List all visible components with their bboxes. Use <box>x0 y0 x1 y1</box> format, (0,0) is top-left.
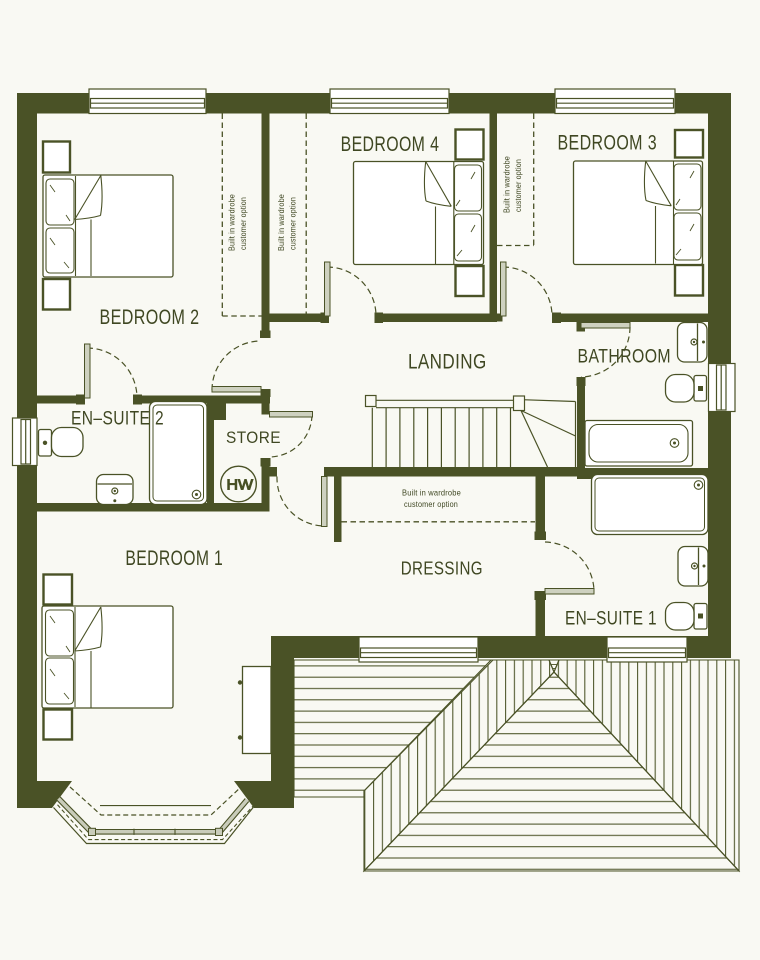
svg-text:EN–SUITE 1: EN–SUITE 1 <box>565 608 657 630</box>
svg-text:customer option: customer option <box>404 499 458 509</box>
svg-text:customer option: customer option <box>238 197 248 250</box>
svg-text:Built in wardrobe: Built in wardrobe <box>502 156 512 213</box>
svg-text:customer option: customer option <box>513 159 523 212</box>
svg-text:BEDROOM 2: BEDROOM 2 <box>100 306 200 329</box>
svg-text:BEDROOM 1: BEDROOM 1 <box>125 547 223 570</box>
svg-text:BATHROOM: BATHROOM <box>578 346 672 368</box>
svg-text:STORE: STORE <box>226 428 281 447</box>
svg-text:EN–SUITE 2: EN–SUITE 2 <box>71 408 164 430</box>
svg-text:Built in wardrobe: Built in wardrobe <box>227 194 237 251</box>
svg-text:HW: HW <box>227 477 254 494</box>
svg-text:Built in wardrobe: Built in wardrobe <box>276 194 286 251</box>
svg-text:Built in wardrobe: Built in wardrobe <box>402 488 461 498</box>
svg-text:BEDROOM 3: BEDROOM 3 <box>558 132 658 155</box>
svg-text:LANDING: LANDING <box>408 351 487 374</box>
svg-text:DRESSING: DRESSING <box>401 558 483 579</box>
svg-text:customer option: customer option <box>288 197 298 250</box>
svg-text:BEDROOM 4: BEDROOM 4 <box>341 133 440 156</box>
